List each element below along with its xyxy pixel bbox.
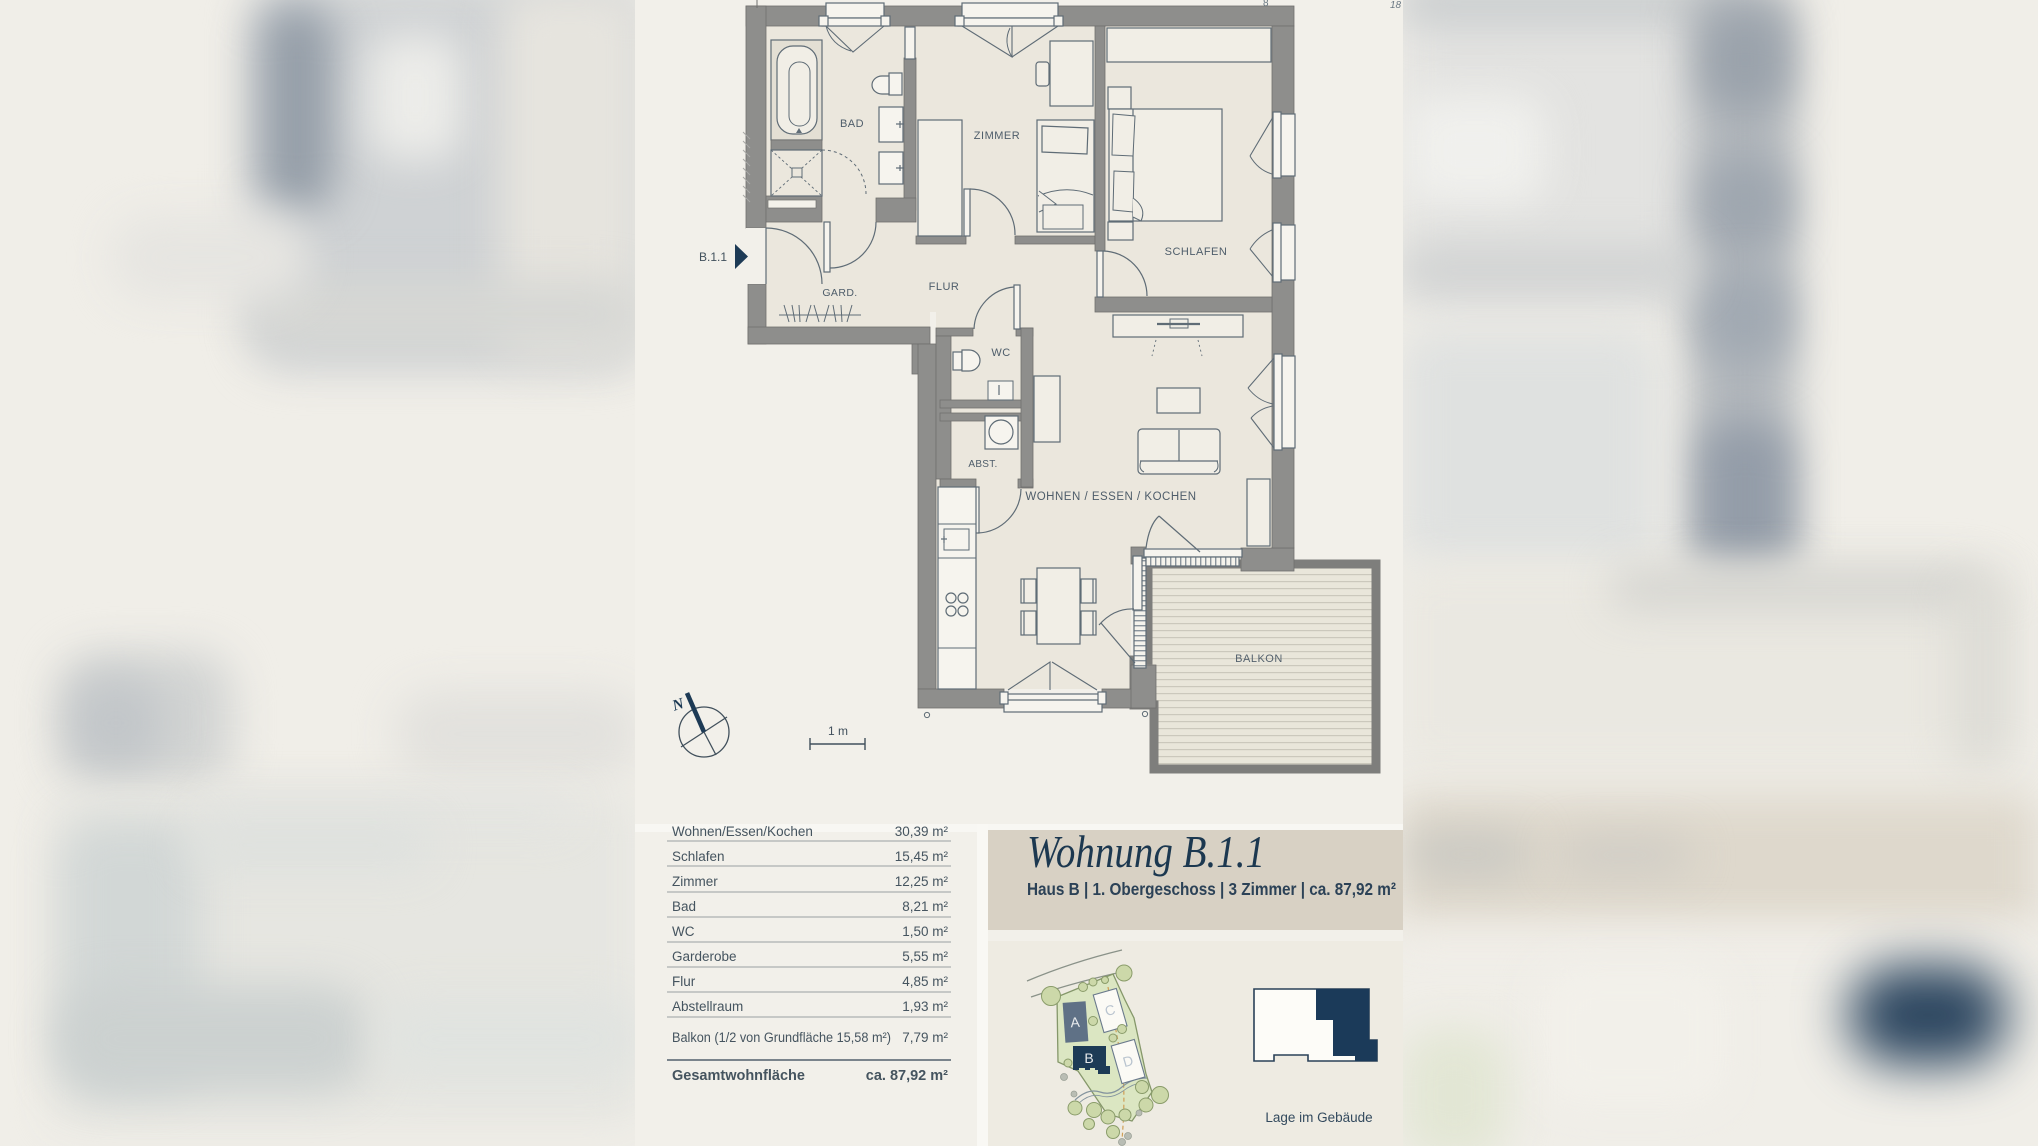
svg-text:4,85 m²: 4,85 m² xyxy=(902,974,948,989)
svg-text:SCHLAFEN: SCHLAFEN xyxy=(1165,246,1228,258)
svg-text:Wohnung B.1.1: Wohnung B.1.1 xyxy=(1027,826,1265,877)
svg-text:7,79 m²: 7,79 m² xyxy=(902,1030,948,1045)
svg-text:30,39 m²: 30,39 m² xyxy=(895,824,949,839)
svg-text:Wohnen/Essen/Kochen: Wohnen/Essen/Kochen xyxy=(672,824,813,839)
svg-text:Garderobe: Garderobe xyxy=(672,949,737,964)
svg-text:Abstellraum: Abstellraum xyxy=(672,999,743,1014)
svg-text:5,55 m²: 5,55 m² xyxy=(902,949,948,964)
svg-text:15,45 m²: 15,45 m² xyxy=(895,849,949,864)
svg-text:Balkon (1/2 von Grundfläche 15: Balkon (1/2 von Grundfläche 15,58 m²) xyxy=(672,1030,891,1045)
svg-text:B: B xyxy=(1084,1050,1093,1066)
svg-text:Zimmer: Zimmer xyxy=(672,874,718,889)
svg-text:A: A xyxy=(1070,1014,1081,1031)
svg-text:Haus B | 1. Obergeschoss | 3 Z: Haus B | 1. Obergeschoss | 3 Zimmer | ca… xyxy=(1027,879,1396,899)
svg-text:12,25 m²: 12,25 m² xyxy=(895,874,949,889)
svg-text:1 m: 1 m xyxy=(828,724,848,738)
svg-text:BALKON: BALKON xyxy=(1235,653,1283,665)
svg-text:WC: WC xyxy=(991,347,1010,359)
svg-text:Lage im Gebäude: Lage im Gebäude xyxy=(1265,1110,1372,1125)
svg-text:Flur: Flur xyxy=(672,974,696,989)
svg-text:BAD: BAD xyxy=(840,118,864,130)
svg-text:GARD.: GARD. xyxy=(822,287,857,299)
svg-text:18: 18 xyxy=(1390,0,1402,11)
svg-text:ca. 87,92 m²: ca. 87,92 m² xyxy=(866,1068,948,1084)
svg-text:FLUR: FLUR xyxy=(929,281,960,293)
svg-text:ZIMMER: ZIMMER xyxy=(974,130,1020,142)
svg-text:WC: WC xyxy=(672,924,695,939)
svg-text:1,93 m²: 1,93 m² xyxy=(902,999,948,1014)
svg-text:WOHNEN / ESSEN / KOCHEN: WOHNEN / ESSEN / KOCHEN xyxy=(1025,491,1196,503)
svg-text:ABST.: ABST. xyxy=(968,459,997,470)
svg-text:Bad: Bad xyxy=(672,899,696,914)
svg-text:Schlafen: Schlafen xyxy=(672,849,725,864)
svg-text:Gesamtwohnfläche: Gesamtwohnfläche xyxy=(672,1068,805,1084)
svg-text:1,50 m²: 1,50 m² xyxy=(902,924,948,939)
svg-text:B.1.1: B.1.1 xyxy=(699,250,727,264)
svg-text:8,21 m²: 8,21 m² xyxy=(902,899,948,914)
svg-text:8: 8 xyxy=(1263,0,1269,9)
